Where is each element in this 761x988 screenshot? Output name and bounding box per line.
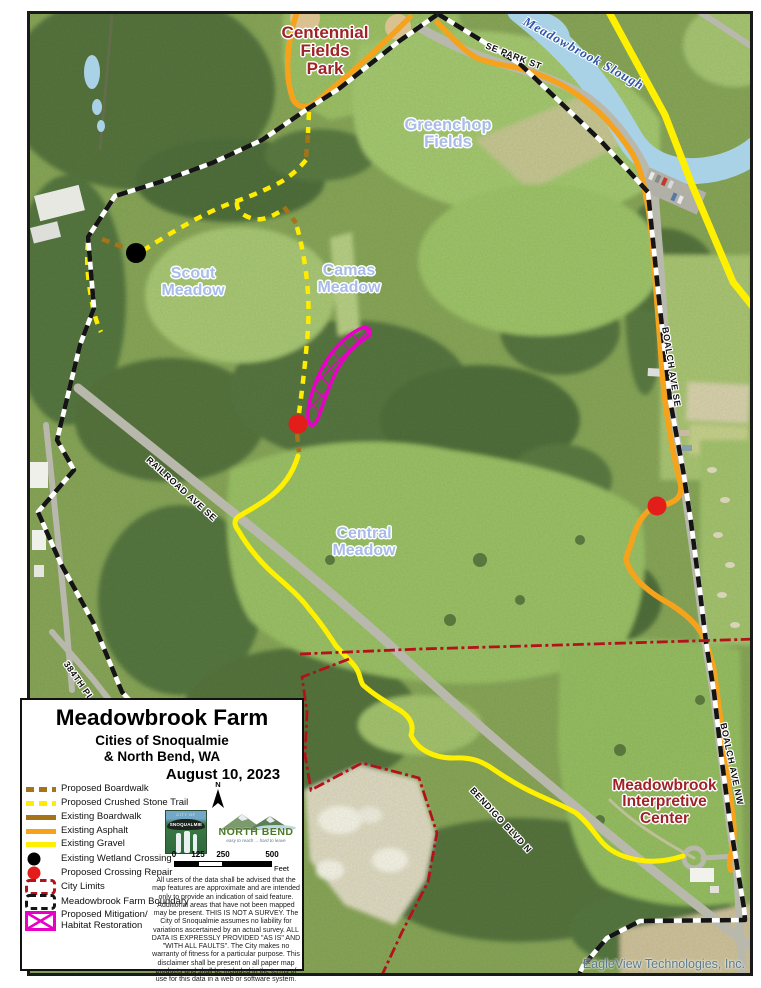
proposed-crossing-repair-dot-east xyxy=(648,497,667,516)
hatched-box-icon xyxy=(25,911,57,931)
north-label: N xyxy=(206,781,230,789)
legend-item-existing-asphalt: Existing Asphalt xyxy=(25,826,128,837)
legend-item-mitigation: Proposed Mitigation/ Habitat Restoration xyxy=(25,910,148,931)
circle-marker-icon xyxy=(25,866,57,880)
dashed-line-icon xyxy=(25,785,57,794)
legend-item-proposed-boardwalk: Proposed Boardwalk xyxy=(25,784,149,795)
legend-item-existing-gravel: Existing Gravel xyxy=(25,839,125,850)
solid-line-icon xyxy=(25,827,57,836)
solid-line-icon xyxy=(25,840,57,849)
legend-item-existing-wetland-crossing: Existing Wetland Crossing xyxy=(25,852,172,866)
snoqualmie-logo-banner: SNOQUALMIE xyxy=(167,819,205,830)
solid-line-icon xyxy=(25,813,57,822)
disclaimer-text: All users of the data shall be advised t… xyxy=(150,877,302,984)
north-arrow-icon xyxy=(211,789,225,809)
map-title: Meadowbrook Farm xyxy=(22,705,302,731)
dashed-line-icon xyxy=(25,799,57,808)
snoqualmie-logo: CITY OF SNOQUALMIE xyxy=(165,810,207,854)
proposed-crossing-repair-dot-west xyxy=(289,415,308,434)
legend-item-proposed-crushed-stone: Proposed Crushed Stone Trail xyxy=(25,798,188,809)
north-arrow: N xyxy=(206,781,230,814)
existing-wetland-crossing-dot xyxy=(126,243,146,263)
circle-marker-icon xyxy=(25,852,57,866)
north-bend-logo: NORTH BEND easy to reach ... hard to lea… xyxy=(214,812,298,848)
dashed-box-icon xyxy=(25,894,57,911)
scale-bar: 0 125 250 500 Feet xyxy=(152,850,302,876)
map-subtitle: Cities of Snoqualmie & North Bend, WA xyxy=(22,733,302,766)
legend-item-existing-boardwalk: Existing Boardwalk xyxy=(25,812,141,823)
map-page: Centennial Fields Park Greenchop Fields … xyxy=(0,0,761,988)
legend-panel: Meadowbrook Farm Cities of Snoqualmie & … xyxy=(20,698,304,971)
